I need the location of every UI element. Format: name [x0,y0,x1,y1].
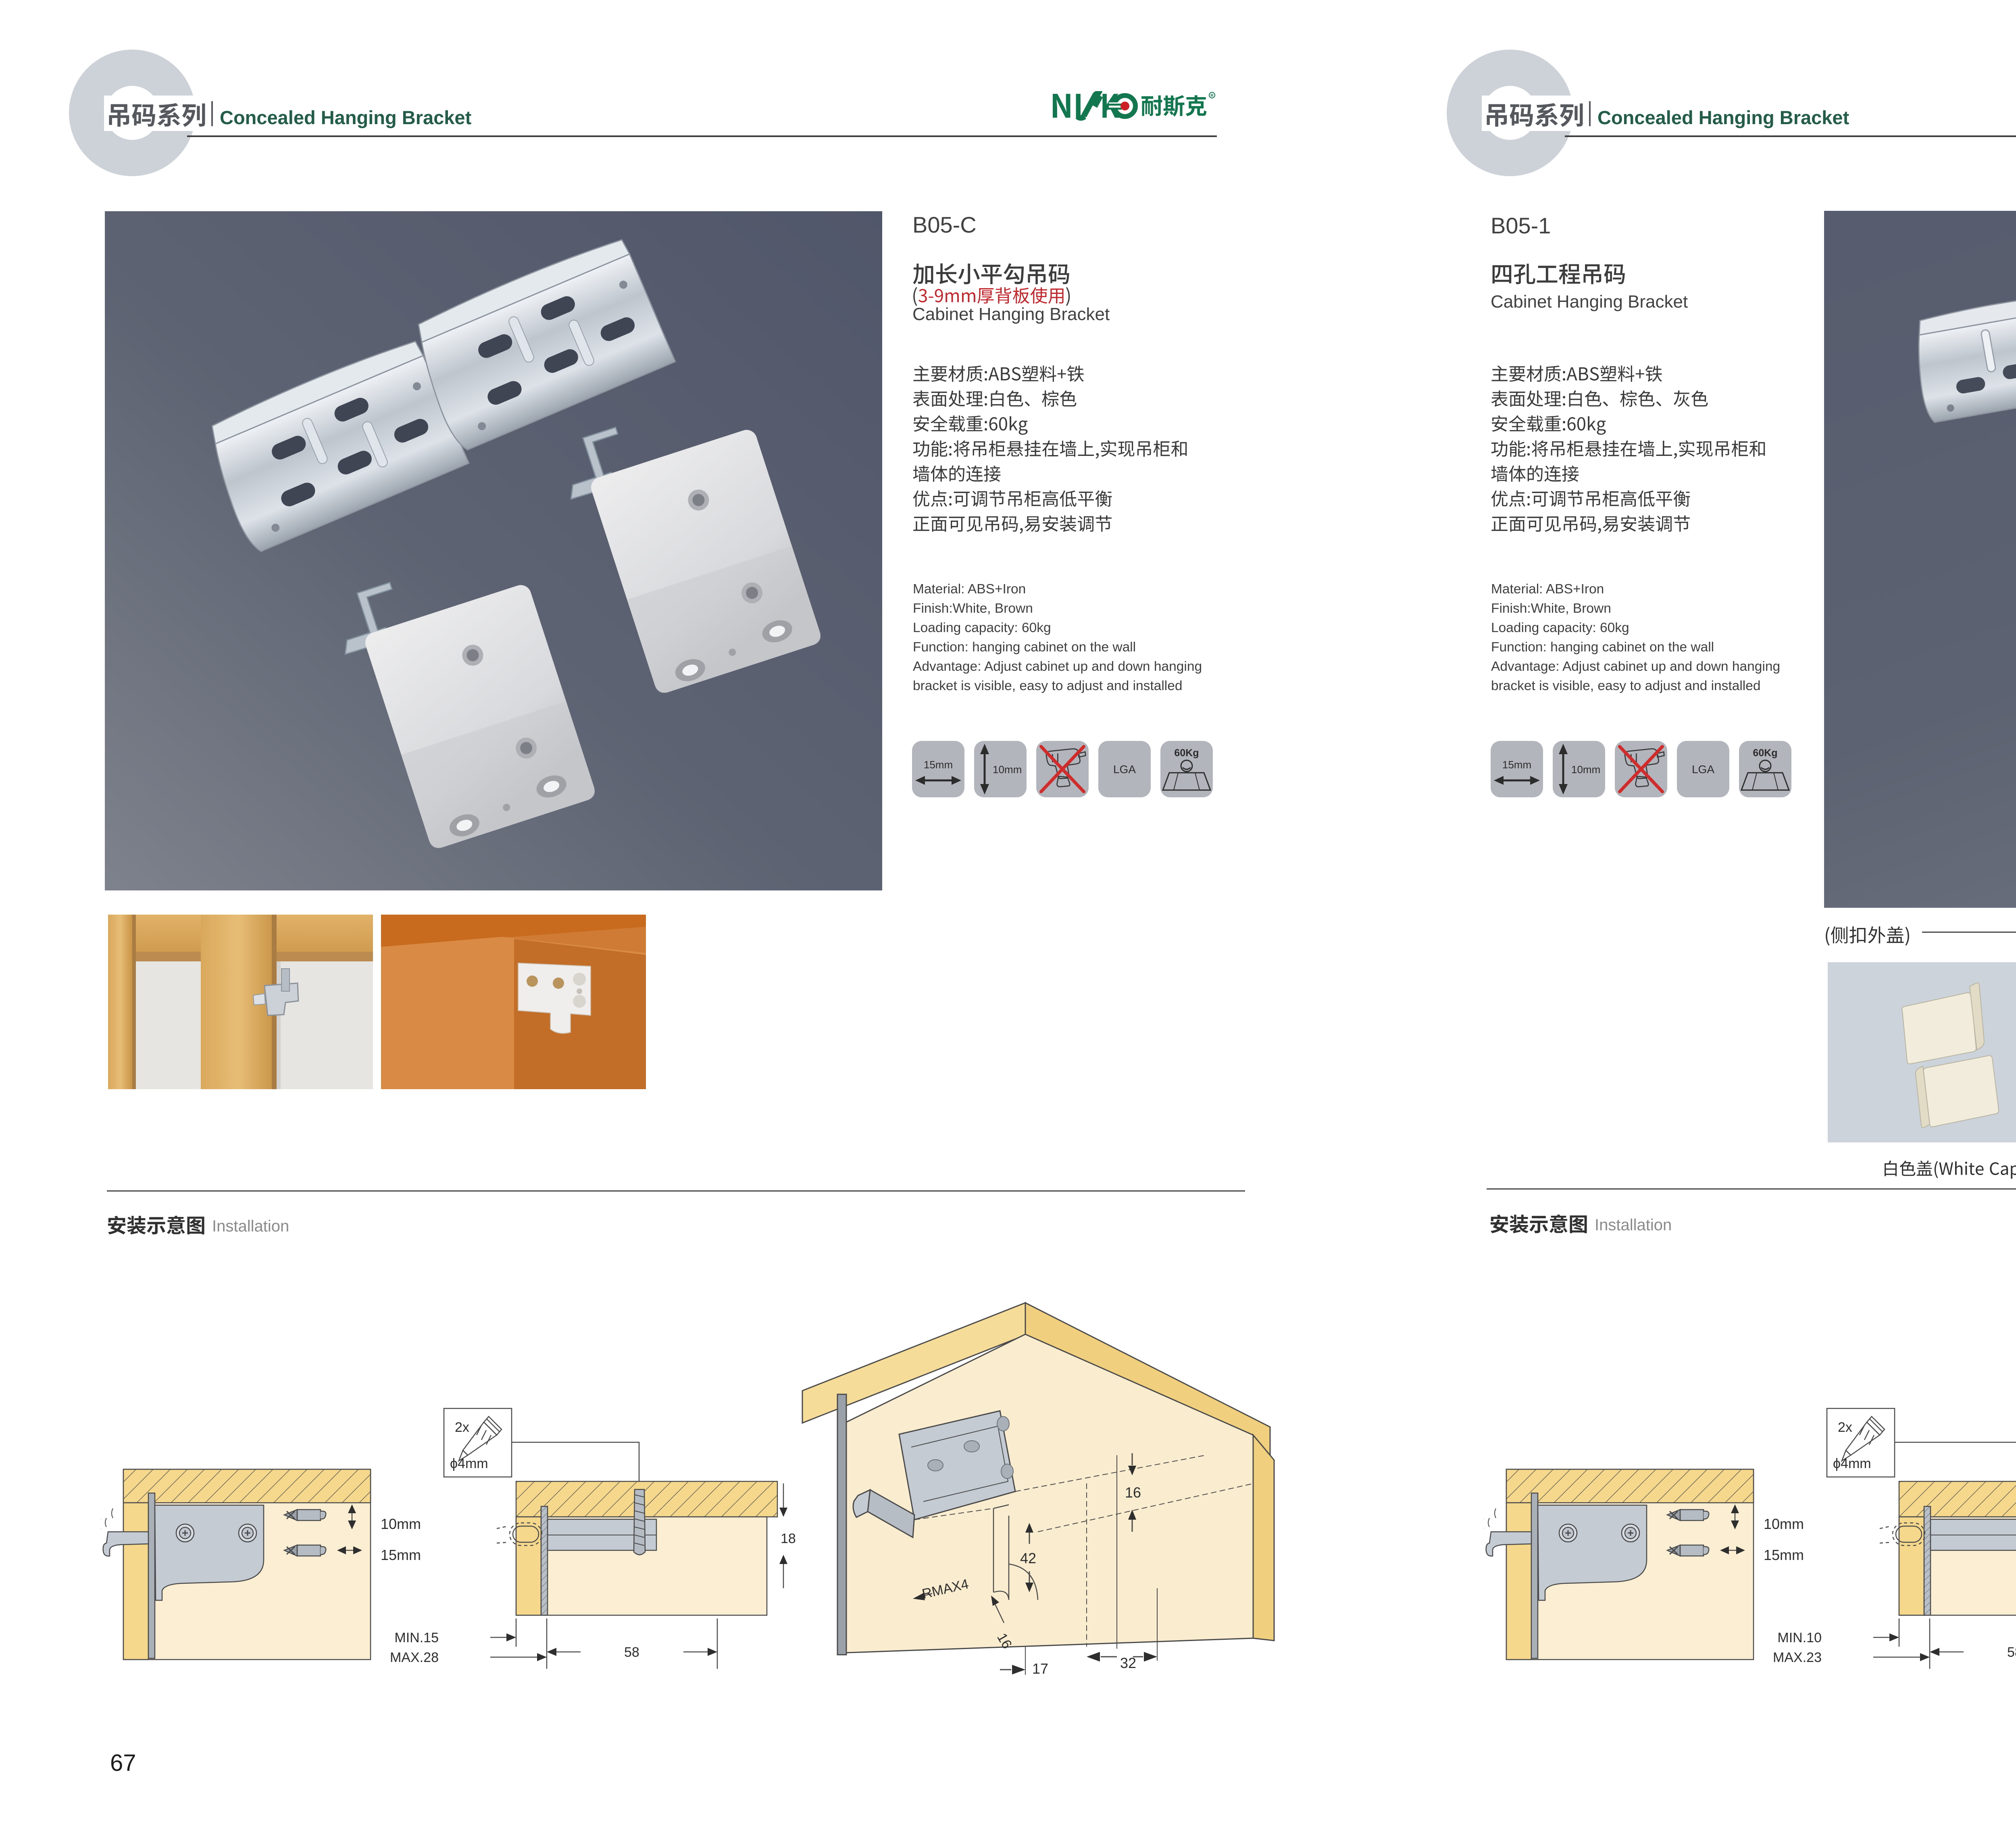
svg-text:2x: 2x [455,1420,469,1435]
svg-text:17: 17 [1032,1660,1048,1677]
svg-text:15mm: 15mm [924,759,953,771]
svg-text:10mm: 10mm [993,763,1022,776]
svg-text:15mm: 15mm [1764,1547,1804,1563]
svg-text:16: 16 [1125,1484,1141,1501]
svg-text:MAX.28: MAX.28 [390,1650,439,1665]
svg-text:42: 42 [1020,1550,1036,1566]
svg-text:MIN.10: MIN.10 [1777,1630,1822,1645]
svg-text:10mm: 10mm [381,1516,421,1532]
svg-text:18: 18 [781,1531,796,1546]
svg-text:10mm: 10mm [1764,1516,1804,1532]
svg-text:LGA: LGA [1113,763,1136,776]
svg-text:58: 58 [624,1645,639,1660]
svg-text:MIN.15: MIN.15 [394,1630,439,1645]
svg-text:R: R [1210,94,1214,98]
svg-text:15mm: 15mm [381,1547,421,1563]
svg-text:32: 32 [1120,1655,1136,1671]
svg-text:ϕ4mm: ϕ4mm [1833,1456,1871,1471]
svg-text:60Kg: 60Kg [1753,747,1777,759]
svg-text:ϕ4mm: ϕ4mm [450,1456,488,1471]
svg-text:58: 58 [2007,1645,2016,1660]
svg-text:60Kg: 60Kg [1174,747,1199,759]
svg-text:LGA: LGA [1692,763,1714,776]
svg-text:MAX.23: MAX.23 [1773,1650,1822,1665]
svg-text:2x: 2x [1838,1420,1852,1435]
svg-text:15mm: 15mm [1502,759,1531,771]
svg-text:10mm: 10mm [1571,763,1600,776]
